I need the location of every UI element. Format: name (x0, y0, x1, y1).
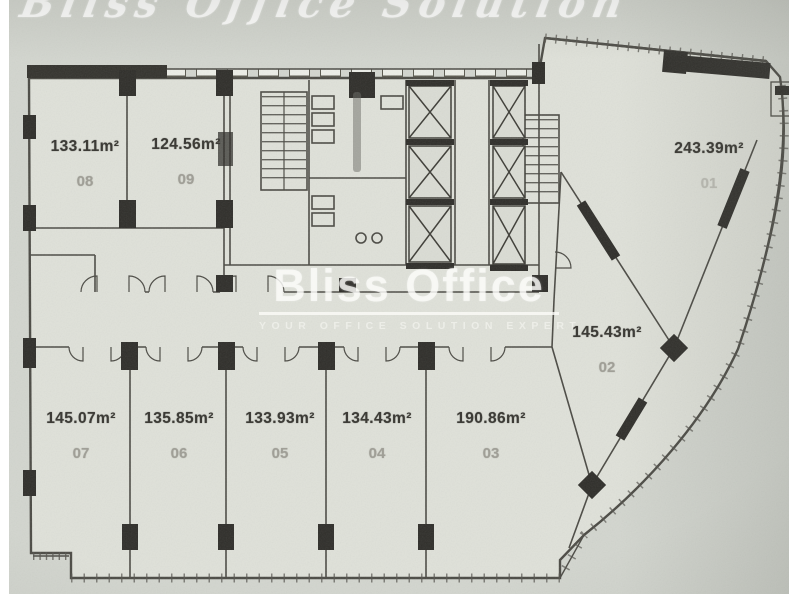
unit-area: 145.43m² (547, 324, 667, 342)
unit-area: 124.56m² (126, 136, 246, 154)
unit-area: 243.39m² (649, 140, 769, 158)
unit-number: 07 (21, 445, 141, 462)
scan-paper: Bliss Office Solution Bliss Office YOUR … (9, 0, 789, 594)
unit-number: 02 (547, 359, 667, 376)
brand-divider (259, 312, 559, 315)
unit-number: 03 (431, 445, 551, 462)
unit-label-07: 145.07m² 07 (21, 410, 141, 462)
unit-label-03: 190.86m² 03 (431, 410, 551, 462)
brand-watermark: Bliss Office YOUR OFFICE SOLUTION EXPERT (259, 264, 559, 332)
unit-label-09: 124.56m² 09 (126, 136, 246, 188)
script-watermark: Bliss Office Solution (17, 0, 585, 26)
unit-label-02: 145.43m² 02 (547, 324, 667, 376)
scanned-floorplan-image: Bliss Office Solution Bliss Office YOUR … (0, 0, 800, 600)
unit-number: 01 (649, 175, 769, 192)
unit-area: 145.07m² (21, 410, 141, 428)
unit-number: 09 (126, 171, 246, 188)
unit-area: 190.86m² (431, 410, 551, 428)
brand-tagline: YOUR OFFICE SOLUTION EXPERT (259, 320, 559, 332)
brand-title: Bliss Office (259, 264, 559, 308)
unit-label-01: 243.39m² 01 (649, 140, 769, 192)
